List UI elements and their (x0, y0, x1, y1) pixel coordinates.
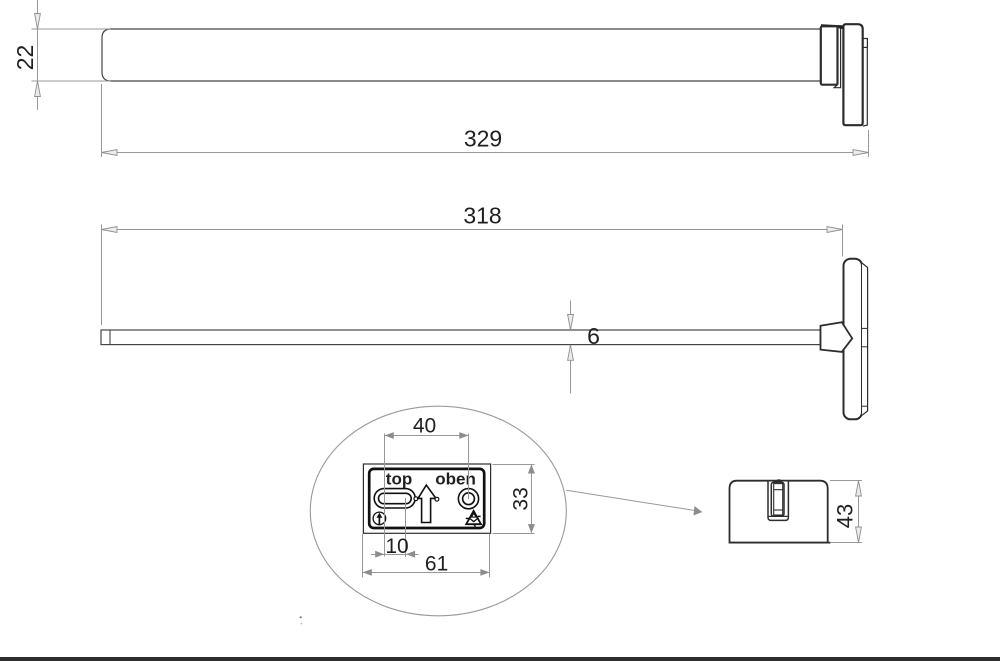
svg-text:43: 43 (833, 504, 858, 528)
svg-text:61: 61 (425, 553, 448, 576)
svg-text:318: 318 (463, 203, 501, 229)
svg-text:329: 329 (464, 126, 502, 152)
svg-text:22: 22 (12, 45, 38, 71)
svg-text:top: top (386, 469, 412, 488)
svg-text:10: 10 (385, 535, 408, 558)
svg-text:6: 6 (587, 323, 600, 349)
svg-text:oben: oben (435, 470, 476, 489)
svg-text:33: 33 (510, 487, 533, 510)
svg-text:40: 40 (413, 415, 436, 438)
